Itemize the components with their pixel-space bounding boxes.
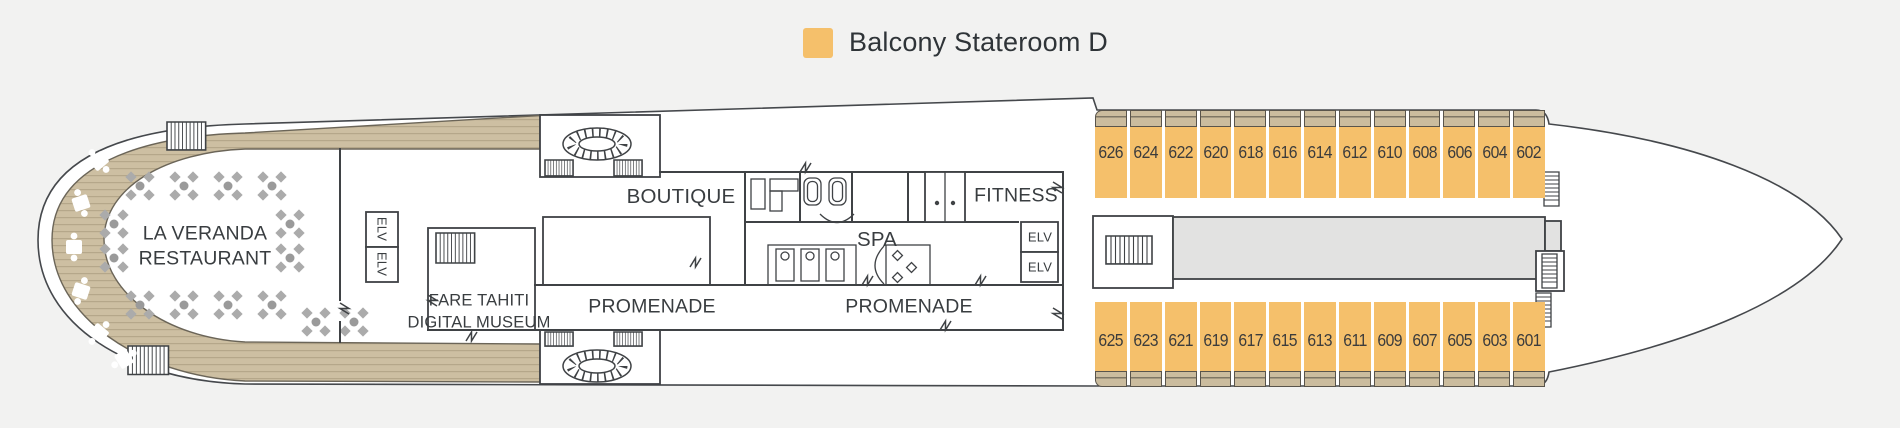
stateroom-number: 614 bbox=[1308, 142, 1333, 163]
stateroom-number: 624 bbox=[1133, 142, 1158, 163]
deck-plan: Balcony Stateroom D LA VERANDA RESTAURAN… bbox=[0, 0, 1900, 428]
stateroom-number: 620 bbox=[1203, 142, 1228, 163]
elevator-label: ELV bbox=[1028, 260, 1052, 275]
stateroom-row-top: 626 624 622 620 618 616 614 bbox=[1095, 127, 1545, 198]
la-veranda-label-line2: RESTAURANT bbox=[139, 248, 272, 271]
balcony-604 bbox=[1478, 110, 1510, 127]
stateroom-number: 608 bbox=[1412, 142, 1437, 163]
balcony-610 bbox=[1374, 110, 1406, 127]
stateroom-number: 611 bbox=[1343, 330, 1366, 351]
promenade-left-label: PROMENADE bbox=[588, 296, 715, 319]
stateroom-number: 616 bbox=[1273, 142, 1298, 163]
stateroom-602[interactable]: 602 bbox=[1513, 127, 1545, 198]
balcony-619 bbox=[1200, 371, 1232, 387]
boutique-label: BOUTIQUE bbox=[627, 185, 736, 209]
stateroom-609[interactable]: 609 bbox=[1374, 302, 1406, 371]
balcony-608 bbox=[1409, 110, 1441, 127]
stateroom-number: 610 bbox=[1377, 142, 1402, 163]
balcony-614 bbox=[1304, 110, 1336, 127]
stateroom-number: 622 bbox=[1168, 142, 1193, 163]
stateroom-number: 619 bbox=[1203, 330, 1228, 351]
stateroom-number: 615 bbox=[1273, 330, 1298, 351]
balcony-617 bbox=[1234, 371, 1266, 387]
boutique-room bbox=[543, 217, 710, 285]
stateroom-621[interactable]: 621 bbox=[1165, 302, 1197, 371]
stateroom-number: 609 bbox=[1377, 330, 1402, 351]
stateroom-number: 602 bbox=[1517, 142, 1542, 163]
stateroom-606[interactable]: 606 bbox=[1443, 127, 1475, 198]
stateroom-number: 618 bbox=[1238, 142, 1263, 163]
promenade-right-label: PROMENADE bbox=[845, 296, 972, 319]
balcony-612 bbox=[1339, 110, 1371, 127]
stateroom-626[interactable]: 626 bbox=[1095, 127, 1127, 198]
legend: Balcony Stateroom D bbox=[803, 27, 1108, 58]
stateroom-625[interactable]: 625 bbox=[1095, 302, 1127, 371]
balcony-607 bbox=[1409, 371, 1441, 387]
balcony-623 bbox=[1130, 371, 1162, 387]
stateroom-number: 613 bbox=[1308, 330, 1333, 351]
stateroom-number: 606 bbox=[1447, 142, 1472, 163]
stateroom-617[interactable]: 617 bbox=[1234, 302, 1266, 371]
stateroom-number: 603 bbox=[1482, 330, 1507, 351]
fitness-label: FITNESS bbox=[974, 185, 1058, 208]
fare-tahiti-label-line1: FARE TAHITI bbox=[429, 292, 530, 311]
stateroom-601[interactable]: 601 bbox=[1513, 302, 1545, 371]
elevator-label: ELV bbox=[375, 252, 390, 276]
stateroom-number: 623 bbox=[1133, 330, 1158, 351]
ladder-icon bbox=[1542, 254, 1557, 288]
balcony-601 bbox=[1513, 371, 1545, 387]
stateroom-603[interactable]: 603 bbox=[1478, 302, 1510, 371]
balcony-602 bbox=[1513, 110, 1545, 127]
ladder-icon bbox=[1544, 172, 1559, 206]
stateroom-number: 626 bbox=[1099, 142, 1124, 163]
stateroom-number: 607 bbox=[1412, 330, 1437, 351]
stateroom-620[interactable]: 620 bbox=[1200, 127, 1232, 198]
stateroom-row-bottom: 625 623 621 619 617 615 613 bbox=[1095, 302, 1545, 371]
stairs-icon bbox=[436, 233, 475, 263]
grand-staircase-top bbox=[540, 115, 660, 177]
balcony-621 bbox=[1165, 371, 1197, 387]
crew-corridor-block bbox=[1173, 217, 1545, 279]
balcony-strip-bottom bbox=[1095, 371, 1545, 387]
stateroom-number: 604 bbox=[1482, 142, 1507, 163]
stateroom-616[interactable]: 616 bbox=[1269, 127, 1301, 198]
stateroom-610[interactable]: 610 bbox=[1374, 127, 1406, 198]
stateroom-number: 605 bbox=[1447, 330, 1472, 351]
fare-tahiti-label-line2: DIGITAL MUSEUM bbox=[407, 314, 550, 333]
stateroom-619[interactable]: 619 bbox=[1200, 302, 1232, 371]
balcony-stateroom-d-swatch bbox=[803, 28, 833, 58]
balcony-626 bbox=[1095, 110, 1127, 127]
balcony-603 bbox=[1478, 371, 1510, 387]
balcony-611 bbox=[1339, 371, 1371, 387]
stateroom-612[interactable]: 612 bbox=[1339, 127, 1371, 198]
balcony-616 bbox=[1269, 110, 1301, 127]
stairs-icon bbox=[1106, 236, 1152, 264]
stateroom-608[interactable]: 608 bbox=[1409, 127, 1441, 198]
stateroom-613[interactable]: 613 bbox=[1304, 302, 1336, 371]
stateroom-605[interactable]: 605 bbox=[1443, 302, 1475, 371]
stateroom-622[interactable]: 622 bbox=[1165, 127, 1197, 198]
la-veranda-label-line1: LA VERANDA bbox=[143, 223, 267, 246]
stateroom-number: 601 bbox=[1517, 330, 1542, 351]
stateroom-623[interactable]: 623 bbox=[1130, 302, 1162, 371]
stateroom-604[interactable]: 604 bbox=[1478, 127, 1510, 198]
stateroom-624[interactable]: 624 bbox=[1130, 127, 1162, 198]
stateroom-618[interactable]: 618 bbox=[1234, 127, 1266, 198]
balcony-618 bbox=[1234, 110, 1266, 127]
stateroom-611[interactable]: 611 bbox=[1339, 302, 1371, 371]
balcony-620 bbox=[1200, 110, 1232, 127]
legend-label: Balcony Stateroom D bbox=[849, 27, 1108, 58]
stateroom-615[interactable]: 615 bbox=[1269, 302, 1301, 371]
spa-label: SPA bbox=[857, 228, 897, 252]
elevator-label: ELV bbox=[375, 217, 390, 241]
corridor-stub bbox=[1545, 221, 1561, 251]
balcony-605 bbox=[1443, 371, 1475, 387]
stateroom-614[interactable]: 614 bbox=[1304, 127, 1336, 198]
grand-staircase-bottom bbox=[540, 330, 660, 384]
balcony-615 bbox=[1269, 371, 1301, 387]
stateroom-number: 621 bbox=[1168, 330, 1193, 351]
balcony-606 bbox=[1443, 110, 1475, 127]
ship-outline-graphic bbox=[0, 0, 1900, 428]
stateroom-number: 625 bbox=[1099, 330, 1124, 351]
elevator-label: ELV bbox=[1028, 230, 1052, 245]
balcony-609 bbox=[1374, 371, 1406, 387]
stateroom-number: 612 bbox=[1342, 142, 1367, 163]
balcony-613 bbox=[1304, 371, 1336, 387]
balcony-624 bbox=[1130, 110, 1162, 127]
balcony-strip-top bbox=[1095, 110, 1545, 127]
balcony-622 bbox=[1165, 110, 1197, 127]
balcony-625 bbox=[1095, 371, 1127, 387]
stateroom-607[interactable]: 607 bbox=[1409, 302, 1441, 371]
stateroom-number: 617 bbox=[1238, 330, 1263, 351]
